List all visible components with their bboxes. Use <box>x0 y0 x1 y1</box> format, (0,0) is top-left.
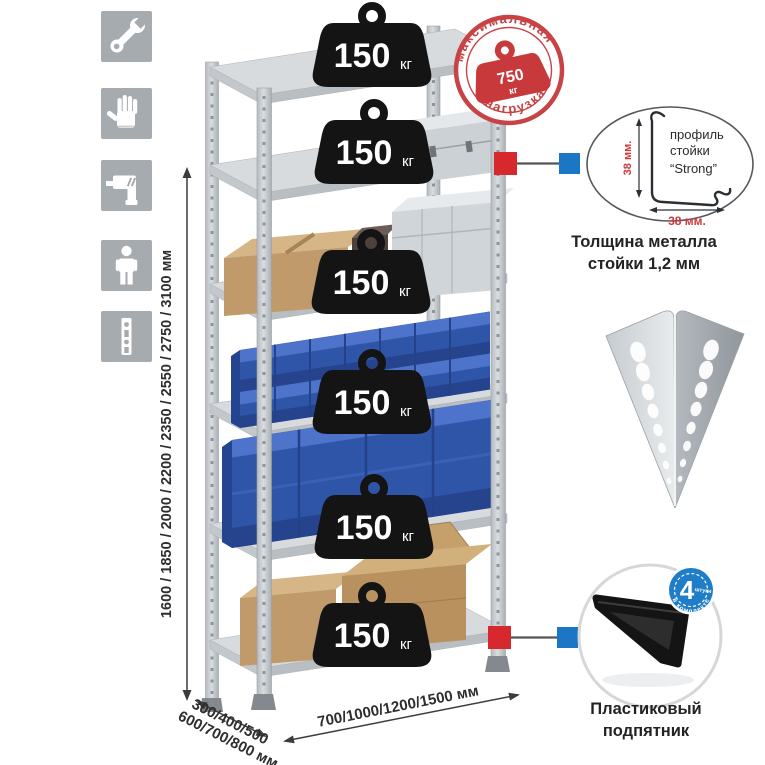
max-load-stamp: максимальная нагрузка 750 кг <box>441 6 579 134</box>
profile-label-line2: стойки <box>670 143 710 158</box>
shelf-load-unit: кг <box>402 153 415 170</box>
foot-caption: Пластиковый подпятник <box>566 699 726 743</box>
profile-caption-line2: стойки 1,2 мм <box>564 254 724 276</box>
wrench-icon <box>101 11 152 62</box>
shelf-load-value: 150 <box>333 264 390 302</box>
blue-marker-top <box>559 153 580 174</box>
profile-label-line3: “Strong” <box>670 161 717 176</box>
shelf-load-value: 150 <box>334 384 391 422</box>
profile-detail-diagram: 38 мм. 38 мм. профиль стойки “Strong” <box>584 96 760 234</box>
height-dimension: 1600 / 1850 / 2000 / 2200 / 2350 / 2550 … <box>159 167 192 701</box>
profile-caption: Толщина металла стойки 1,2 мм <box>564 232 724 276</box>
shelf-load-value: 150 <box>336 509 393 547</box>
red-marker-bottom <box>488 626 511 649</box>
drill-icon <box>101 160 152 211</box>
red-marker-top <box>494 152 517 175</box>
profile-dim-left-label: 38 мм. <box>622 141 634 176</box>
perforated-post-icon <box>101 311 152 362</box>
width-dimension: 700/1000/1200/1500 мм <box>283 682 520 743</box>
shelf-load-value: 150 <box>334 37 391 75</box>
profile-label-line1: профиль <box>670 127 724 142</box>
shelf-load-unit: кг <box>400 56 413 73</box>
shelf-load-value: 150 <box>336 134 393 172</box>
foot-callout-connector <box>488 626 578 649</box>
shelf-load-value: 150 <box>334 617 391 655</box>
height-dimension-label: 1600 / 1850 / 2000 / 2200 / 2350 / 2550 … <box>159 250 175 618</box>
shelf-load-unit: кг <box>402 528 415 545</box>
profile-dim-bottom-label: 38 мм. <box>668 214 706 228</box>
shelving-infographic: 150кг 150кг 150кг 150кг 150кг 150кг 1600… <box>0 0 765 765</box>
shelf-load-unit: кг <box>399 283 412 300</box>
foot-caption-line1: Пластиковый <box>566 699 726 721</box>
profile-caption-line1: Толщина металла <box>564 232 724 254</box>
person-icon <box>101 240 152 291</box>
shelf-load-unit: кг <box>400 636 413 653</box>
shelf-load-unit: кг <box>400 403 413 420</box>
quantity-badge-value: 4 <box>680 575 695 605</box>
metal-angle-post-image <box>596 300 754 520</box>
profile-callout-connector <box>494 152 580 175</box>
foot-caption-line2: подпятник <box>566 721 726 743</box>
plastic-foot-diagram: 4 штуки в комплекте <box>568 552 740 720</box>
gloves-icon <box>101 88 152 139</box>
